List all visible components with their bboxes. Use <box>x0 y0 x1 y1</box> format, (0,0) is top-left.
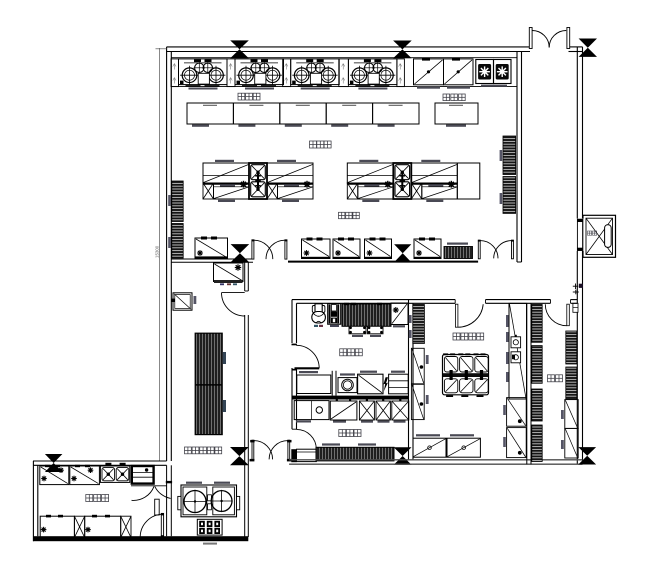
svg-text:15300: 15300 <box>155 245 160 258</box>
